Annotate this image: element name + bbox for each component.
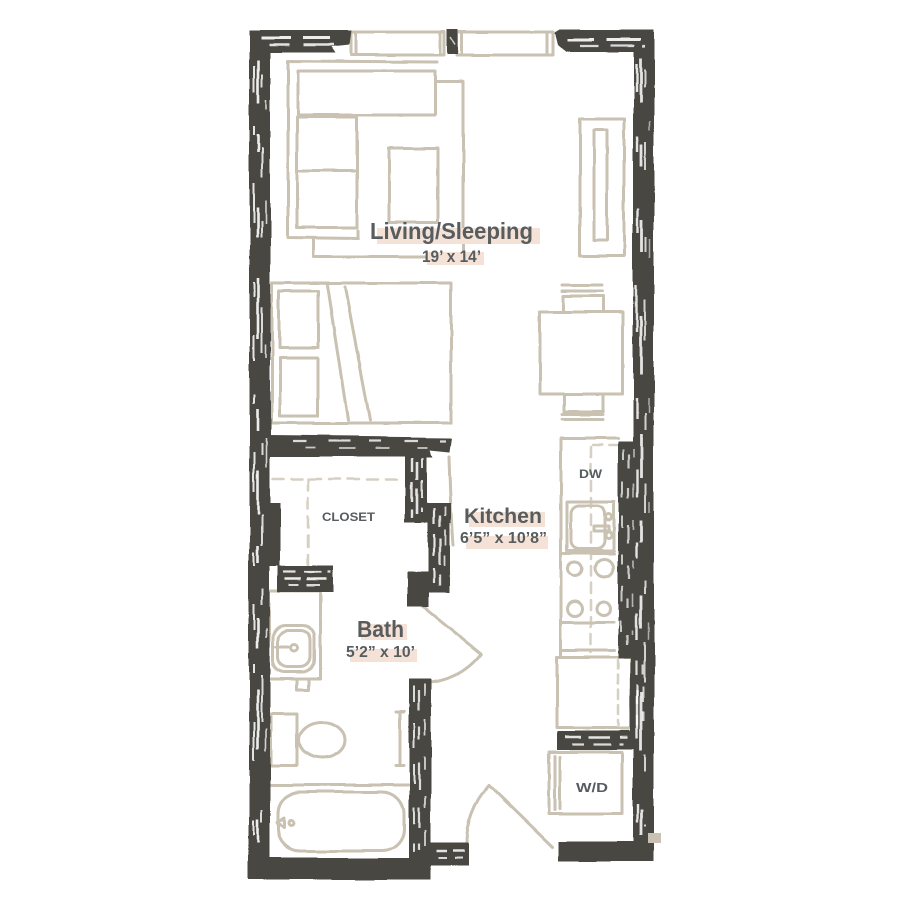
svg-text:19’ x 14’: 19’ x 14’ bbox=[422, 247, 481, 266]
svg-text:W/D: W/D bbox=[576, 780, 608, 795]
svg-text:DW: DW bbox=[579, 467, 603, 481]
svg-text:CLOSET: CLOSET bbox=[322, 512, 375, 524]
svg-text:Bath: Bath bbox=[357, 616, 404, 642]
svg-text:5’2” x 10’: 5’2” x 10’ bbox=[346, 644, 415, 661]
svg-text:6’5” x 10’8”: 6’5” x 10’8” bbox=[460, 530, 547, 547]
svg-text:Kitchen: Kitchen bbox=[464, 505, 542, 528]
svg-text:Living/Sleeping: Living/Sleeping bbox=[370, 218, 533, 244]
